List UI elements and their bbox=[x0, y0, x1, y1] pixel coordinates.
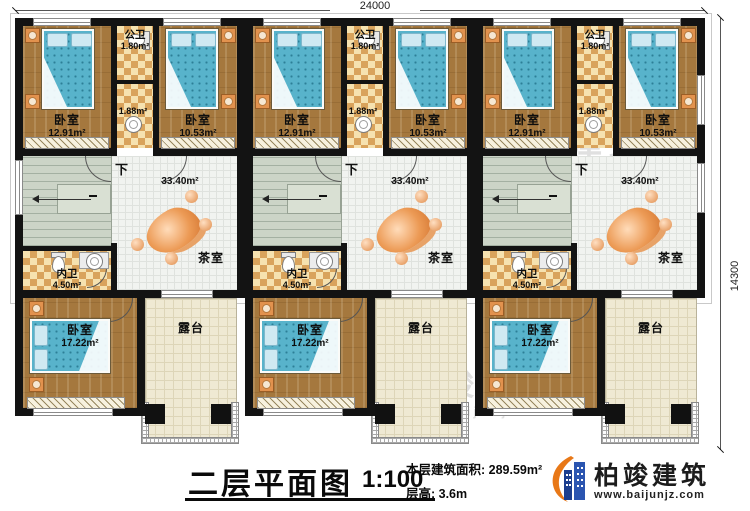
nightstand bbox=[489, 377, 504, 392]
room-name: 茶室 bbox=[643, 252, 699, 266]
nightstand bbox=[451, 28, 466, 43]
inner-bath-label: 内卫 4.50m² bbox=[483, 268, 571, 290]
tea-stool bbox=[185, 190, 198, 203]
tea-room-area-label: 33.40m² bbox=[135, 176, 225, 188]
room-area: 33.40m² bbox=[365, 176, 455, 188]
room-name: 卧室 bbox=[389, 114, 467, 128]
stair-arrow-head bbox=[488, 195, 499, 203]
tea-room-name-label: 茶室 bbox=[183, 252, 239, 266]
tea-stool bbox=[659, 218, 672, 231]
pillow bbox=[171, 33, 192, 47]
pillow bbox=[631, 33, 652, 47]
wall bbox=[159, 148, 245, 156]
room-name: 茶室 bbox=[183, 252, 239, 266]
tea-room-name-label: 茶室 bbox=[643, 252, 699, 266]
wall bbox=[619, 148, 705, 156]
wall bbox=[597, 298, 605, 416]
nightstand bbox=[259, 377, 274, 392]
nightstand bbox=[25, 28, 40, 43]
nightstand bbox=[681, 28, 696, 43]
pillow bbox=[264, 349, 278, 370]
bedroom-label: 卧室 10.53m² bbox=[159, 114, 237, 139]
pillow bbox=[507, 33, 528, 47]
window bbox=[697, 75, 705, 125]
pillow bbox=[34, 349, 48, 370]
terrace-railing bbox=[141, 437, 239, 444]
dwelling-unit: 卧室 12.91m² 公卫 1.80m² 1.88m² 卧室 10.53m² 下… bbox=[475, 18, 705, 452]
room-area: 10.53m² bbox=[159, 128, 237, 140]
inner-bath-label: 内卫 4.50m² bbox=[253, 268, 341, 290]
tea-stool bbox=[429, 218, 442, 231]
floor-plan: 卧室 12.91m² 公卫 1.80m² 1.88m² 卧室 10.53m² 下… bbox=[0, 0, 750, 455]
room-area: 1.88m² bbox=[113, 106, 153, 116]
bed bbox=[271, 28, 325, 110]
bed bbox=[41, 28, 95, 110]
room-area: 1.88m² bbox=[343, 106, 383, 116]
room-name: 露台 bbox=[375, 322, 467, 336]
inner-bath-label: 内卫 4.50m² bbox=[23, 268, 111, 290]
sink bbox=[355, 116, 372, 133]
wall bbox=[475, 18, 483, 416]
bedroom-label: 卧室 12.91m² bbox=[23, 114, 111, 139]
column bbox=[145, 404, 165, 424]
room-name: 内卫 bbox=[483, 268, 571, 280]
room-name: 卧室 bbox=[483, 324, 597, 338]
wall bbox=[389, 148, 475, 156]
window bbox=[263, 18, 321, 26]
column bbox=[211, 404, 231, 424]
wall bbox=[577, 80, 613, 84]
room-name: 公卫 bbox=[345, 29, 385, 41]
stair-break-mark bbox=[89, 195, 97, 197]
sink bbox=[125, 116, 142, 133]
room-name: 公卫 bbox=[575, 29, 615, 41]
pillow bbox=[71, 33, 92, 47]
room-name: 露台 bbox=[605, 322, 697, 336]
room-name: 卧室 bbox=[159, 114, 237, 128]
wall bbox=[475, 148, 571, 156]
bed bbox=[395, 28, 449, 110]
room-area: 4.50m² bbox=[23, 280, 111, 290]
bedroom-label: 卧室 17.22m² bbox=[483, 324, 597, 349]
room-name: 内卫 bbox=[253, 268, 341, 280]
dwelling-unit: 卧室 12.91m² 公卫 1.80m² 1.88m² 卧室 10.53m² 下… bbox=[15, 18, 245, 452]
tea-stool bbox=[131, 238, 144, 251]
nightstand bbox=[29, 301, 44, 316]
room-name: 卧室 bbox=[23, 324, 137, 338]
column bbox=[671, 404, 691, 424]
tea-stool bbox=[361, 238, 374, 251]
title-underline bbox=[185, 498, 435, 501]
floor-area-text: 本层建筑面积: 289.59m² bbox=[406, 459, 542, 478]
drawing-title: 二层平面图 bbox=[188, 459, 353, 503]
bed bbox=[625, 28, 679, 110]
terrace-railing bbox=[371, 437, 469, 444]
wall bbox=[483, 246, 571, 251]
nightstand bbox=[485, 94, 500, 109]
bedroom-label: 卧室 10.53m² bbox=[619, 114, 697, 139]
stair-direction-label: 下 bbox=[575, 159, 588, 178]
room-area: 1.80m² bbox=[575, 41, 615, 51]
wall bbox=[245, 148, 341, 156]
window bbox=[493, 18, 551, 26]
terrace-door bbox=[621, 290, 673, 298]
room-area: 4.50m² bbox=[253, 280, 341, 290]
public-bath-label: 公卫 1.80m² bbox=[575, 29, 615, 51]
column bbox=[441, 404, 461, 424]
tea-room-area-label: 33.40m² bbox=[595, 176, 685, 188]
pillow bbox=[655, 33, 676, 47]
stair-direction-label: 下 bbox=[345, 159, 358, 178]
room-name: 卧室 bbox=[253, 114, 341, 128]
room-area: 12.91m² bbox=[23, 128, 111, 140]
window bbox=[263, 408, 343, 416]
public-bath-label: 公卫 1.80m² bbox=[115, 29, 155, 51]
stair-arrow-head bbox=[28, 195, 39, 203]
pillow bbox=[425, 33, 446, 47]
room-area: 1.80m² bbox=[115, 41, 155, 51]
wall bbox=[347, 80, 383, 84]
tea-stool bbox=[591, 238, 604, 251]
window bbox=[33, 18, 91, 26]
brand-website: www.baijunjz.com bbox=[594, 489, 705, 501]
room-name: 露台 bbox=[145, 322, 237, 336]
room-name: 卧室 bbox=[483, 114, 571, 128]
window bbox=[493, 408, 573, 416]
window bbox=[697, 163, 705, 213]
window bbox=[623, 18, 681, 26]
stair-break-mark bbox=[549, 195, 557, 197]
floor-height-text: 层高: 3.6m bbox=[406, 483, 467, 502]
brand-name: 柏竣建筑 bbox=[594, 456, 710, 492]
wall bbox=[253, 246, 341, 251]
stair-direction-label: 下 bbox=[115, 159, 128, 178]
wall bbox=[137, 298, 145, 416]
tea-stool bbox=[645, 190, 658, 203]
stair-arrow-line bbox=[495, 199, 551, 200]
room-area: 33.40m² bbox=[135, 176, 225, 188]
column bbox=[605, 404, 625, 424]
wall bbox=[367, 298, 375, 416]
room-area: 10.53m² bbox=[389, 128, 467, 140]
bedroom-label: 卧室 12.91m² bbox=[483, 114, 571, 139]
nightstand bbox=[489, 301, 504, 316]
pillow bbox=[301, 33, 322, 47]
room-name: 内卫 bbox=[23, 268, 111, 280]
room-name: 卧室 bbox=[619, 114, 697, 128]
bedroom-label: 卧室 12.91m² bbox=[253, 114, 341, 139]
nightstand bbox=[255, 94, 270, 109]
bedroom-label: 卧室 17.22m² bbox=[23, 324, 137, 349]
stair-arrow-head bbox=[258, 195, 269, 203]
window bbox=[393, 18, 451, 26]
wall bbox=[23, 246, 111, 251]
stair-arrow-line bbox=[265, 199, 321, 200]
pillow bbox=[195, 33, 216, 47]
room-area: 1.80m² bbox=[345, 41, 385, 51]
sink bbox=[585, 116, 602, 133]
hall-bath-area-label: 1.88m² bbox=[573, 106, 613, 116]
column bbox=[375, 404, 395, 424]
window bbox=[15, 160, 23, 215]
tea-stool bbox=[199, 218, 212, 231]
bed bbox=[165, 28, 219, 110]
terrace-label: 露台 bbox=[375, 322, 467, 336]
tea-stool bbox=[625, 252, 638, 265]
room-area: 33.40m² bbox=[595, 176, 685, 188]
pillow bbox=[277, 33, 298, 47]
stair-break-mark bbox=[319, 195, 327, 197]
wall bbox=[245, 18, 253, 416]
room-area: 4.50m² bbox=[483, 280, 571, 290]
room-area: 17.22m² bbox=[483, 338, 597, 350]
window bbox=[33, 408, 113, 416]
nightstand bbox=[221, 28, 236, 43]
wall bbox=[117, 80, 153, 84]
nightstand bbox=[451, 94, 466, 109]
window bbox=[163, 18, 221, 26]
brand-logo-icon bbox=[548, 454, 588, 504]
stair-arrow-line bbox=[35, 199, 91, 200]
floor-plan-page: { "plan": { "dim_top": "24000", "dim_rig… bbox=[0, 0, 750, 511]
pillow bbox=[47, 33, 68, 47]
pillow bbox=[401, 33, 422, 47]
bed bbox=[501, 28, 555, 110]
nightstand bbox=[485, 28, 500, 43]
bedroom-label: 卧室 17.22m² bbox=[253, 324, 367, 349]
room-area: 17.22m² bbox=[253, 338, 367, 350]
nightstand bbox=[29, 377, 44, 392]
hall-bath-area-label: 1.88m² bbox=[343, 106, 383, 116]
tea-room-name-label: 茶室 bbox=[413, 252, 469, 266]
tea-stool bbox=[395, 252, 408, 265]
room-area: 10.53m² bbox=[619, 128, 697, 140]
terrace-label: 露台 bbox=[605, 322, 697, 336]
bedroom-label: 卧室 10.53m² bbox=[389, 114, 467, 139]
public-bath-label: 公卫 1.80m² bbox=[345, 29, 385, 51]
pillow bbox=[531, 33, 552, 47]
nightstand bbox=[681, 94, 696, 109]
nightstand bbox=[259, 301, 274, 316]
tea-stool bbox=[415, 190, 428, 203]
room-name: 公卫 bbox=[115, 29, 155, 41]
room-area: 12.91m² bbox=[253, 128, 341, 140]
room-name: 卧室 bbox=[23, 114, 111, 128]
hall-bath-area-label: 1.88m² bbox=[113, 106, 153, 116]
nightstand bbox=[221, 94, 236, 109]
terrace-door bbox=[391, 290, 443, 298]
room-area: 17.22m² bbox=[23, 338, 137, 350]
room-area: 1.88m² bbox=[573, 106, 613, 116]
wall bbox=[15, 18, 23, 416]
tea-stool bbox=[165, 252, 178, 265]
terrace-railing bbox=[601, 437, 699, 444]
room-name: 卧室 bbox=[253, 324, 367, 338]
pillow bbox=[494, 349, 508, 370]
room-area: 12.91m² bbox=[483, 128, 571, 140]
terrace-door bbox=[161, 290, 213, 298]
wall bbox=[15, 148, 111, 156]
nightstand bbox=[255, 28, 270, 43]
dwelling-unit: 卧室 12.91m² 公卫 1.80m² 1.88m² 卧室 10.53m² 下… bbox=[245, 18, 475, 452]
nightstand bbox=[25, 94, 40, 109]
room-name: 茶室 bbox=[413, 252, 469, 266]
tea-room-area-label: 33.40m² bbox=[365, 176, 455, 188]
terrace-label: 露台 bbox=[145, 322, 237, 336]
